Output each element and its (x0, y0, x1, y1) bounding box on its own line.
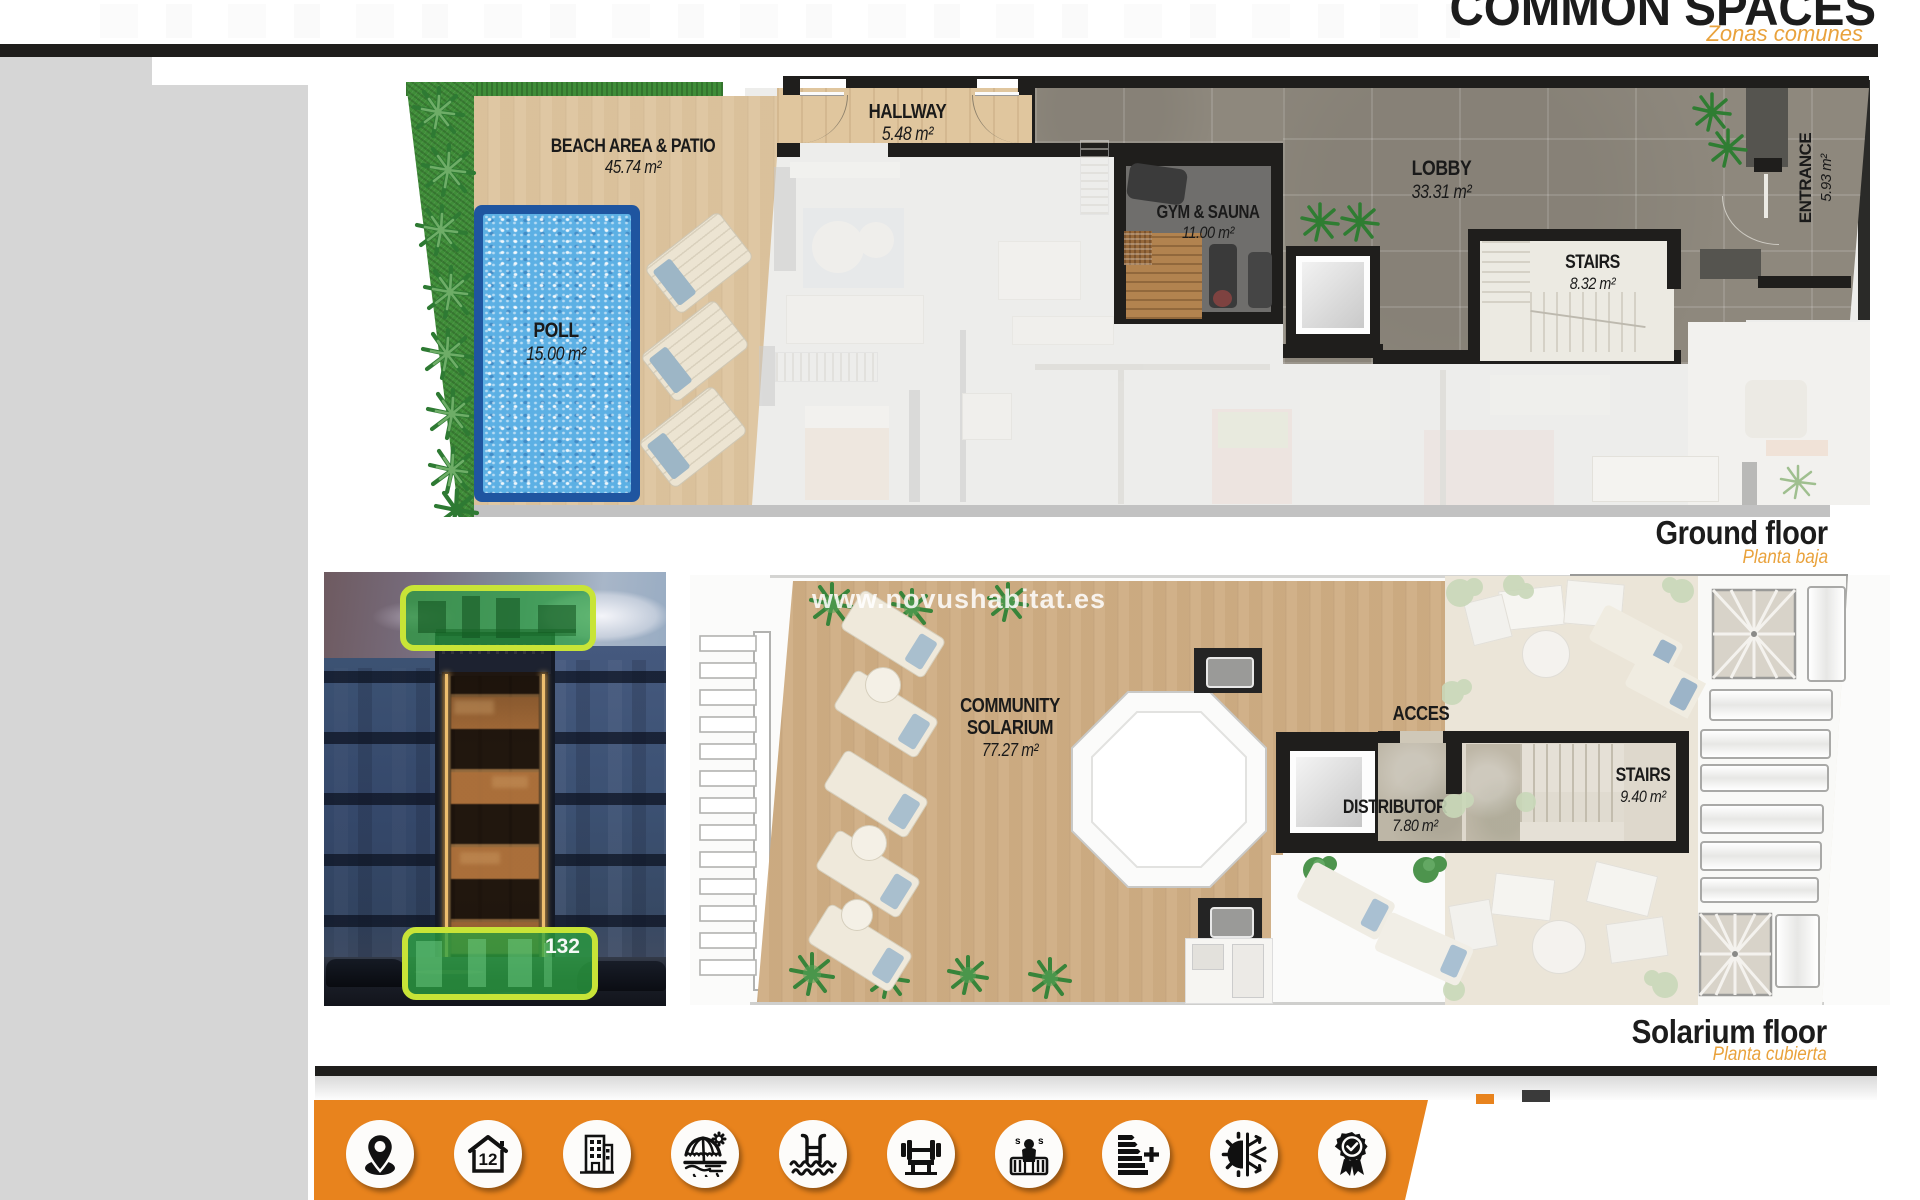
svg-text:12: 12 (479, 1150, 498, 1169)
svg-text:s: s (1038, 1136, 1044, 1147)
svg-text:s: s (1015, 1136, 1021, 1147)
